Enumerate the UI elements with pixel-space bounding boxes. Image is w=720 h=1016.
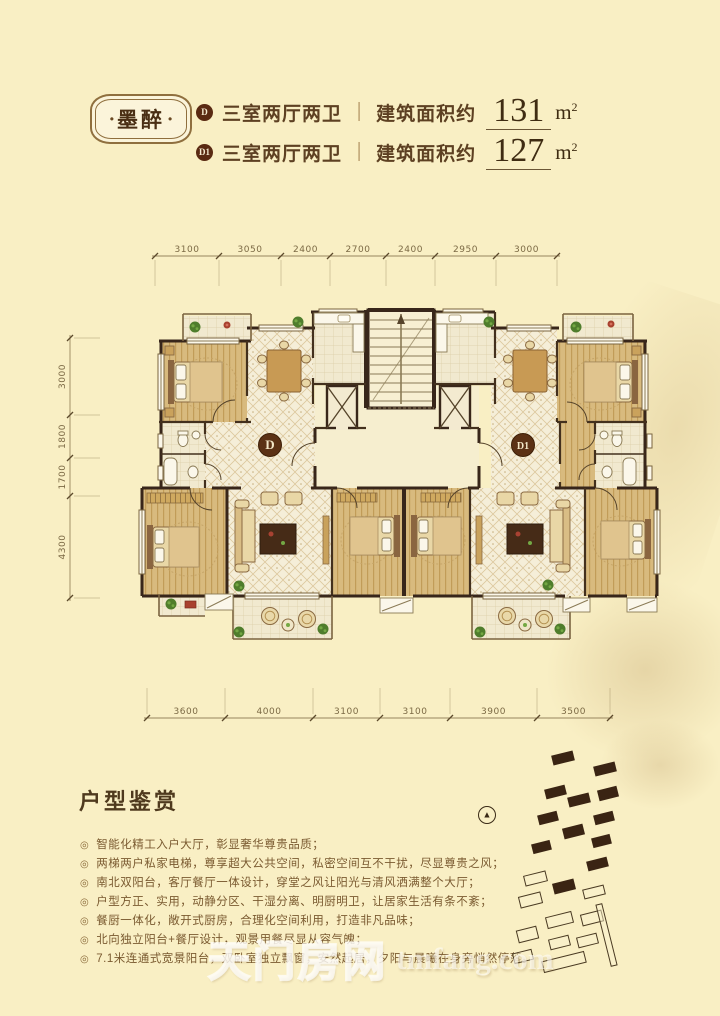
svg-text:3100: 3100 — [403, 707, 428, 717]
unit-rooms-label: 三室两厅两卫 — [222, 99, 342, 126]
unit-rooms-label: 三室两厅两卫 — [222, 139, 342, 166]
staircase — [368, 310, 434, 408]
unit-spec-line-d: D三室两厅两卫|建筑面积约131m2 — [196, 92, 578, 132]
svg-text:2700: 2700 — [346, 245, 371, 255]
divider: | — [357, 141, 361, 164]
site-building-block — [582, 884, 606, 899]
badge-dot: • — [168, 112, 172, 126]
area-unit: m2 — [555, 140, 577, 165]
site-building-block — [597, 786, 619, 802]
svg-text:3000: 3000 — [514, 245, 539, 255]
site-building-block — [586, 857, 609, 872]
badge-title: 墨醉 — [117, 104, 165, 134]
feature-item: ◎南北双阳台，客厅餐厅一体设计，穿堂之风让阳光与清风洒满整个大厅； — [80, 874, 534, 893]
svg-text:1700: 1700 — [58, 465, 68, 490]
area-unit: m2 — [555, 100, 577, 125]
site-building-block — [562, 824, 585, 840]
site-building-block — [567, 792, 591, 807]
svg-text:3100: 3100 — [334, 707, 359, 717]
area-value: 127 — [486, 134, 551, 170]
features-title: 户型鉴赏 — [79, 784, 179, 816]
svg-text:1800: 1800 — [58, 424, 68, 449]
site-building-block — [541, 951, 587, 973]
floorplan-page: { "page": {"background": "#f9efc4"}, "he… — [0, 0, 720, 1016]
svg-text:2400: 2400 — [293, 245, 318, 255]
unit-code-icon: D — [196, 104, 213, 121]
svg-text:4000: 4000 — [257, 707, 282, 717]
svg-text:D1: D1 — [517, 441, 529, 452]
elevator-left — [327, 386, 357, 430]
area-value: 131 — [486, 94, 551, 130]
site-building-block — [593, 761, 617, 776]
site-building-block — [544, 785, 567, 800]
feature-item: ◎餐厨一体化，敞开式厨房，合理化空间利用，打造非凡品味； — [80, 912, 534, 931]
unit-code-icon: D1 — [196, 144, 213, 161]
north-compass-icon: ▲ — [478, 806, 496, 824]
bullet-icon: ◎ — [80, 935, 89, 946]
badge-dot: • — [110, 112, 114, 126]
site-building-block — [531, 840, 552, 854]
svg-text:D: D — [265, 437, 274, 452]
svg-text:3100: 3100 — [175, 245, 200, 255]
site-building-block — [545, 911, 574, 929]
feature-item: ◎北向独立阳台+餐厅设计，观景用餐尽显从容气魄； — [80, 931, 534, 950]
svg-text:3000: 3000 — [58, 364, 68, 389]
divider: | — [357, 101, 361, 124]
svg-text:3500: 3500 — [561, 707, 586, 717]
feature-item: ◎两梯两户私家电梯，尊享超大公共空间，私密空间互不干扰，尽显尊贵之风； — [80, 855, 534, 874]
site-building-block — [548, 935, 571, 951]
svg-text:3050: 3050 — [238, 245, 263, 255]
area-label: 建筑面积约 — [376, 99, 476, 126]
svg-text:4300: 4300 — [58, 535, 68, 560]
svg-text:3900: 3900 — [481, 707, 506, 717]
features-list: ◎智能化精工入户大厅，彰显奢华尊贵品质；◎两梯两户私家电梯，尊享超大公共空间，私… — [80, 836, 534, 969]
feature-item: ◎7.1米连通式宽景阳台，双卧室独立飘窗，安然起居，夕阳与晨曦在身旁悄然停落。 — [80, 950, 534, 969]
svg-text:3600: 3600 — [174, 707, 199, 717]
bullet-icon: ◎ — [80, 954, 89, 965]
feature-item: ◎智能化精工入户大厅，彰显奢华尊贵品质； — [80, 836, 534, 855]
svg-text:2400: 2400 — [398, 245, 423, 255]
site-building-block — [591, 834, 612, 848]
area-label: 建筑面积约 — [376, 139, 476, 166]
bullet-icon: ◎ — [80, 897, 89, 908]
site-building-block — [551, 750, 575, 765]
svg-text:2950: 2950 — [453, 245, 478, 255]
site-building-block — [537, 811, 559, 826]
site-building-block — [552, 879, 576, 895]
elevator-right — [440, 386, 470, 430]
site-building-block — [593, 811, 615, 826]
feature-item: ◎户型方正、实用，动静分区、干湿分离、明厨明卫，让居家生活有条不紊； — [80, 893, 534, 912]
site-building-block — [576, 933, 599, 949]
bullet-icon: ◎ — [80, 916, 89, 927]
bullet-icon: ◎ — [80, 859, 89, 870]
site-building-block — [595, 903, 617, 967]
bullet-icon: ◎ — [80, 840, 89, 851]
bullet-icon: ◎ — [80, 878, 89, 889]
floorplan-drawing: 3100305024002700240029503000360040003100… — [55, 238, 675, 738]
project-badge: • 墨醉 • — [90, 94, 192, 144]
unit-spec-line-d1: D1三室两厅两卫|建筑面积约127m2 — [196, 132, 578, 172]
